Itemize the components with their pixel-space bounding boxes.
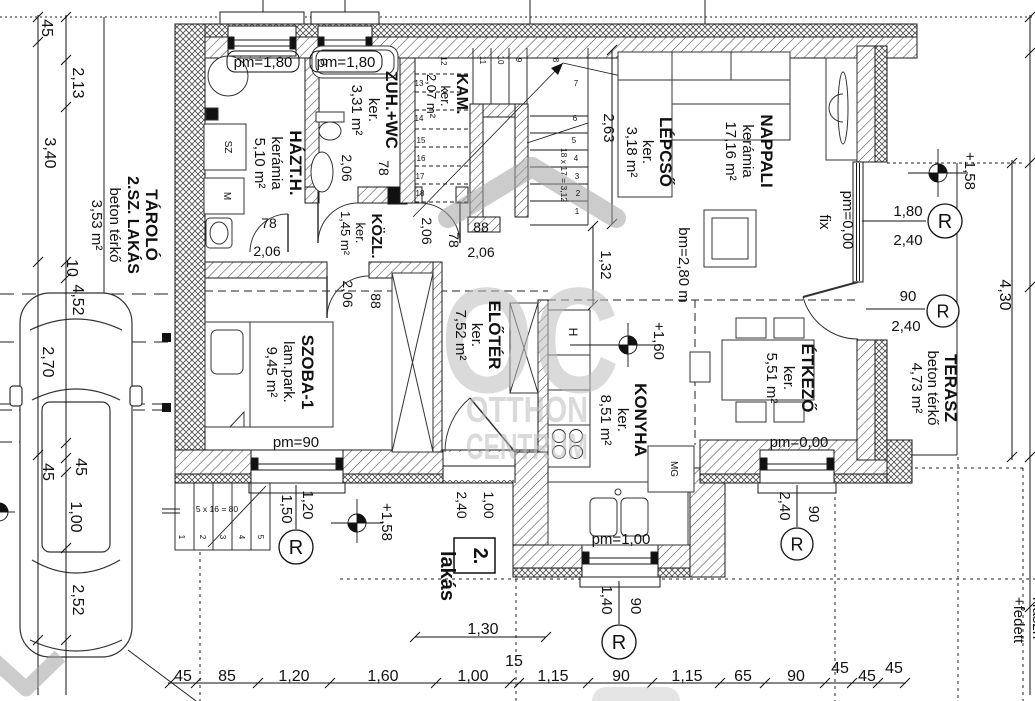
pm-label: pm=0,00 bbox=[839, 191, 856, 250]
dim-left: 1,00 bbox=[67, 501, 84, 532]
dim-left: 45 bbox=[38, 19, 55, 37]
dim-bottom: 1,20 bbox=[278, 668, 309, 685]
room-label-lepcso: LÉPCSŐ bbox=[656, 117, 675, 187]
stair-step-number: 14 bbox=[415, 114, 424, 123]
faucet bbox=[615, 489, 621, 495]
stair-step-number: 3 bbox=[575, 172, 580, 181]
svg-text:R: R bbox=[791, 535, 804, 555]
stair-step-number: 16 bbox=[417, 154, 426, 163]
plan-label: 2,07 m² bbox=[424, 74, 439, 119]
plan-label: 17,16 m² bbox=[722, 121, 739, 180]
plan-label: 78 bbox=[376, 160, 392, 176]
stair-step-number: 4 bbox=[574, 154, 579, 163]
room-label-zuhwc: ZUH.+WC bbox=[382, 71, 401, 149]
wc-bowl bbox=[319, 122, 341, 140]
room-label-terasz: TERASZ bbox=[941, 354, 960, 422]
plan-label: beton térkő bbox=[106, 187, 123, 262]
wc-tank bbox=[316, 112, 344, 122]
plan-label: 2.SZ. LAKÁS bbox=[124, 176, 143, 274]
dim-left: 45 bbox=[72, 458, 89, 476]
plan-label: 3,31 m² bbox=[348, 85, 365, 136]
plan-label: 90 bbox=[627, 598, 644, 615]
appliance-letter: MG bbox=[668, 461, 679, 477]
svg-text:R: R bbox=[612, 632, 626, 654]
plan-label: ker. bbox=[365, 98, 382, 122]
plan-label: 5 x 16 = 80 bbox=[196, 504, 239, 514]
plan-label: 88 bbox=[368, 293, 384, 309]
watermark-corner-shape bbox=[592, 687, 680, 701]
stair-step-number: 13 bbox=[415, 79, 424, 88]
room-label-hazth: HÁZT.H. bbox=[286, 130, 305, 195]
plan-label: 78 bbox=[261, 215, 277, 231]
stair-step-number: 8 bbox=[551, 58, 560, 63]
coffee-table bbox=[704, 210, 756, 267]
appliance-letter: M bbox=[221, 192, 232, 200]
roller-shutter-marker: R bbox=[781, 528, 813, 560]
plan-label: 9,45 m² bbox=[263, 347, 280, 398]
pm-label: pm=0,00 bbox=[770, 434, 829, 451]
plan-label: 1,50 bbox=[278, 494, 295, 523]
pm-label: pm=90 bbox=[273, 434, 319, 451]
plan-label: kerámia bbox=[268, 136, 285, 190]
dim-bottom: 1,60 bbox=[367, 668, 398, 685]
stair-step-number: 1 bbox=[575, 207, 580, 216]
elevation-value: +1,58 bbox=[378, 503, 395, 541]
plan-label: 4,73 m² bbox=[908, 363, 925, 414]
ext-step-number: 3 bbox=[218, 535, 227, 540]
appliance-letter: SZ bbox=[222, 141, 233, 154]
car-mirror bbox=[130, 386, 142, 406]
plan-label: ker. bbox=[639, 140, 656, 164]
room-label-nappali: NAPPALI bbox=[757, 114, 776, 187]
dim-bottom: 45 bbox=[174, 668, 192, 685]
dim-right: +fedett bbox=[1010, 597, 1027, 644]
roller-shutter-marker: R bbox=[928, 204, 962, 238]
dim-bottom: 45 bbox=[831, 660, 849, 677]
plan-label: 1,20 bbox=[299, 490, 316, 519]
room-label-szoba1: SZOBA-1 bbox=[298, 335, 317, 410]
plan-label: 5,51 m² bbox=[763, 353, 780, 404]
stair-step-number: 15 bbox=[417, 136, 426, 145]
plan-label: 1,40 bbox=[598, 585, 615, 614]
window-sill bbox=[580, 577, 660, 587]
room-label-kam: KAM. bbox=[453, 74, 470, 115]
ext-step-number: 1 bbox=[177, 535, 186, 540]
plan-label: 1,45 m² bbox=[338, 211, 353, 256]
stair-step-number: 11 bbox=[478, 56, 487, 65]
dim-left: 45 bbox=[39, 463, 56, 481]
stair-step-number: 18 bbox=[416, 189, 425, 198]
window-sill bbox=[249, 483, 345, 493]
floor-plan-svg: OC OTTHON CENTRUM TÁROLÓ2.SZ. LAKÁSbeton… bbox=[0, 0, 1035, 701]
svg-text:R: R bbox=[289, 537, 303, 559]
pm-label: pm=1,80 bbox=[317, 54, 376, 71]
room-label-etkezo: ÉTKEZŐ bbox=[798, 344, 817, 413]
plan-label: 3,53 m² bbox=[88, 200, 105, 251]
plan-label: 2,06 bbox=[339, 154, 355, 181]
dim-left: 10 bbox=[63, 259, 80, 277]
plan-label: 3,18 m² bbox=[623, 127, 640, 178]
dim-bottom: 1,15 bbox=[671, 668, 702, 685]
pm-label: pm=1,00 bbox=[592, 531, 651, 548]
plan-label: 2,06 bbox=[419, 217, 435, 244]
car-mirror bbox=[10, 386, 22, 406]
stair-step-number: 7 bbox=[574, 79, 579, 88]
stair-step-number: 6 bbox=[573, 114, 578, 123]
plan-label: kerámia bbox=[739, 124, 756, 178]
plan-label: 88 bbox=[473, 219, 489, 235]
plan-label: bm=2,80 m bbox=[675, 227, 692, 302]
pm-label: pm=1,80 bbox=[234, 54, 293, 71]
plan-label: ker. bbox=[353, 223, 368, 244]
watermark-line1: OTTHON bbox=[466, 389, 588, 430]
plan-label: beton térkő bbox=[924, 350, 941, 425]
roller-shutter-marker: R bbox=[602, 625, 636, 659]
plan-label: 78 bbox=[446, 232, 462, 248]
elevation-marker bbox=[331, 499, 383, 543]
wardrobe bbox=[392, 273, 433, 452]
plan-label: fix bbox=[816, 215, 833, 231]
plan-label: 1,32 bbox=[597, 250, 614, 279]
plan-label: 2,40 bbox=[454, 491, 470, 518]
dim-bottom: 45 bbox=[885, 660, 903, 677]
plan-label: 2,06 bbox=[467, 244, 494, 260]
plan-label: 2,63 bbox=[600, 113, 617, 142]
elevation-marker bbox=[0, 500, 15, 524]
plan-label: ker. bbox=[780, 366, 797, 390]
dim-bottom: 90 bbox=[787, 668, 805, 685]
plan-label: 1,00 bbox=[481, 491, 497, 518]
plan-label: 8,51 m² bbox=[597, 395, 614, 446]
dim-left: 2,70 bbox=[39, 346, 56, 377]
dim-bottom: 1,15 bbox=[537, 668, 568, 685]
dim-right: Haszn bbox=[1029, 597, 1035, 640]
door-arc bbox=[803, 297, 858, 339]
unit-label: lakás bbox=[436, 551, 458, 601]
roller-shutter-marker: R bbox=[279, 530, 313, 564]
plan-label: ker. bbox=[468, 323, 485, 347]
appliance-letter: H bbox=[566, 328, 580, 337]
watermark-line2: CENTRUM bbox=[466, 426, 588, 467]
plan-label: 90 bbox=[900, 288, 917, 305]
dim-bottom: 65 bbox=[734, 668, 752, 685]
room-label-eloter: ELŐTÉR bbox=[485, 301, 504, 370]
ext-step-number: 2 bbox=[198, 535, 207, 540]
plan-label: lam.park. bbox=[280, 341, 297, 403]
washbasin bbox=[311, 152, 333, 192]
svg-text:R: R bbox=[938, 211, 952, 233]
stair-step-number: 2 bbox=[576, 189, 581, 198]
plan-label: 1,80 bbox=[893, 203, 922, 220]
stair-step-number: 5 bbox=[572, 136, 577, 145]
room-label-tarolo: TÁROLÓ bbox=[142, 189, 161, 261]
dim-bottom: 1,30 bbox=[467, 621, 498, 638]
plan-label: 2,40 bbox=[893, 232, 922, 249]
room-label-konyha: KONYHA bbox=[631, 383, 650, 457]
dim-bottom: 90 bbox=[612, 668, 630, 685]
plan-label: 2,06 bbox=[340, 280, 356, 307]
floor-plan: OC OTTHON CENTRUM TÁROLÓ2.SZ. LAKÁSbeton… bbox=[0, 0, 1035, 701]
room-label-kozl: KÖZL. bbox=[368, 214, 385, 259]
watermark-corner-roof bbox=[0, 656, 60, 689]
elevation-marker bbox=[908, 149, 968, 197]
dim-left: 4,52 bbox=[69, 284, 86, 315]
dim-bottom: 85 bbox=[218, 668, 236, 685]
ext-step-number: 5 bbox=[256, 535, 265, 540]
dim-left: 2,52 bbox=[69, 584, 86, 615]
plan-label: ker. bbox=[614, 408, 631, 432]
plan-label: 18 x 17 = 3,12 bbox=[559, 148, 569, 202]
window-sill bbox=[311, 12, 379, 24]
plan-label: 5,10 m² bbox=[251, 138, 268, 189]
dim-left: 2,13 bbox=[69, 67, 86, 98]
plan-label: 2,06 bbox=[253, 243, 280, 259]
unit-number: 2. bbox=[469, 548, 491, 565]
plan-label: 7,52 m² bbox=[452, 310, 469, 361]
stair-step-number: 12 bbox=[439, 57, 448, 66]
plan-label: 2,40 bbox=[891, 318, 920, 335]
roller-shutter-marker: R bbox=[927, 295, 959, 327]
dim-right: 4,30 bbox=[996, 279, 1013, 310]
dim-bottom: 15 bbox=[505, 653, 523, 670]
dim-bottom: 45 bbox=[858, 668, 876, 685]
svg-text:R: R bbox=[937, 302, 950, 322]
stair-step-number: 9 bbox=[514, 58, 523, 63]
elevation-value: +1,60 bbox=[650, 322, 667, 360]
stair-step-number: 10 bbox=[496, 56, 505, 65]
plan-label: 2,40 bbox=[776, 491, 793, 520]
plan-label: 90 bbox=[805, 506, 822, 523]
fireplace bbox=[826, 58, 857, 160]
ext-step-number: 4 bbox=[237, 535, 246, 540]
dim-left: 3,40 bbox=[41, 137, 58, 168]
plan-label: ker. bbox=[438, 86, 453, 107]
dim-bottom: 1,00 bbox=[457, 668, 488, 685]
window-sill bbox=[220, 12, 304, 24]
stair-step-number: 17 bbox=[416, 172, 425, 181]
elevation-value: +1,58 bbox=[961, 152, 978, 190]
